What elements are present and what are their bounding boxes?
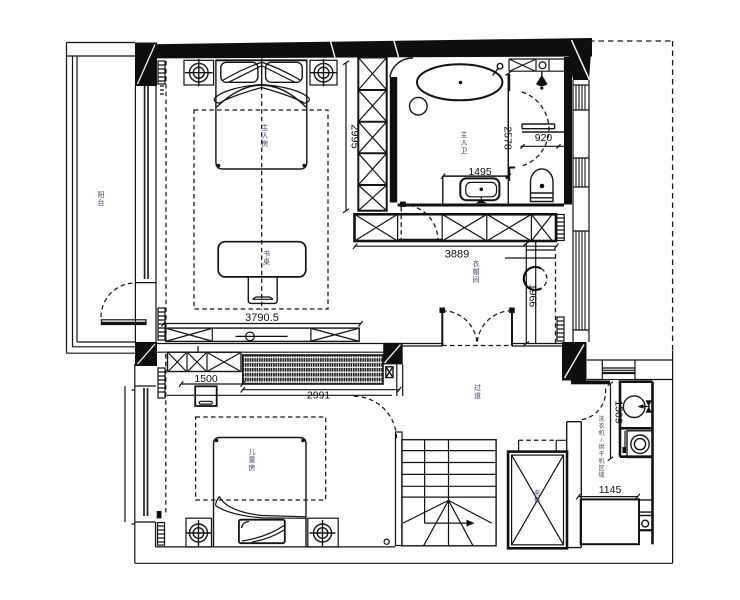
svg-text:2991: 2991 bbox=[307, 390, 331, 402]
svg-text:电: 电 bbox=[534, 489, 540, 497]
svg-text:3790.5: 3790.5 bbox=[245, 312, 279, 324]
svg-text:1509: 1509 bbox=[613, 400, 625, 424]
svg-text:洗: 洗 bbox=[598, 415, 604, 423]
svg-text:衣: 衣 bbox=[473, 259, 480, 268]
svg-text:2995: 2995 bbox=[349, 124, 361, 148]
svg-text:帽: 帽 bbox=[473, 267, 480, 276]
svg-text:干: 干 bbox=[598, 451, 604, 458]
svg-text:台: 台 bbox=[98, 198, 105, 207]
svg-text:域: 域 bbox=[598, 471, 604, 479]
svg-text:衣: 衣 bbox=[598, 422, 604, 430]
svg-text:桌: 桌 bbox=[263, 257, 270, 266]
svg-text:1966: 1966 bbox=[527, 284, 539, 308]
svg-text:1145: 1145 bbox=[599, 484, 622, 496]
svg-text:房: 房 bbox=[262, 139, 269, 148]
svg-text:烘: 烘 bbox=[598, 443, 604, 451]
svg-text:主: 主 bbox=[262, 123, 269, 132]
svg-text:儿: 儿 bbox=[249, 448, 256, 456]
svg-text:1495: 1495 bbox=[468, 166, 492, 178]
svg-text:梯: 梯 bbox=[534, 496, 540, 504]
svg-text:卫: 卫 bbox=[461, 147, 468, 155]
svg-text:机: 机 bbox=[598, 429, 604, 437]
svg-text:阳: 阳 bbox=[98, 190, 105, 199]
svg-text:过: 过 bbox=[474, 383, 481, 392]
svg-text:人: 人 bbox=[461, 139, 468, 147]
svg-text:机: 机 bbox=[598, 457, 604, 465]
svg-text:道: 道 bbox=[474, 391, 481, 400]
svg-text:1500: 1500 bbox=[194, 373, 218, 385]
svg-text:区: 区 bbox=[598, 465, 604, 472]
svg-text:920: 920 bbox=[535, 132, 553, 144]
svg-text:童: 童 bbox=[249, 455, 256, 464]
svg-text:人: 人 bbox=[262, 132, 269, 140]
svg-text:主: 主 bbox=[461, 130, 468, 139]
svg-text:2578: 2578 bbox=[501, 126, 513, 150]
svg-text:间: 间 bbox=[473, 276, 480, 284]
svg-text:书: 书 bbox=[263, 249, 270, 258]
svg-text:房: 房 bbox=[249, 463, 256, 472]
svg-text:3889: 3889 bbox=[445, 249, 469, 261]
